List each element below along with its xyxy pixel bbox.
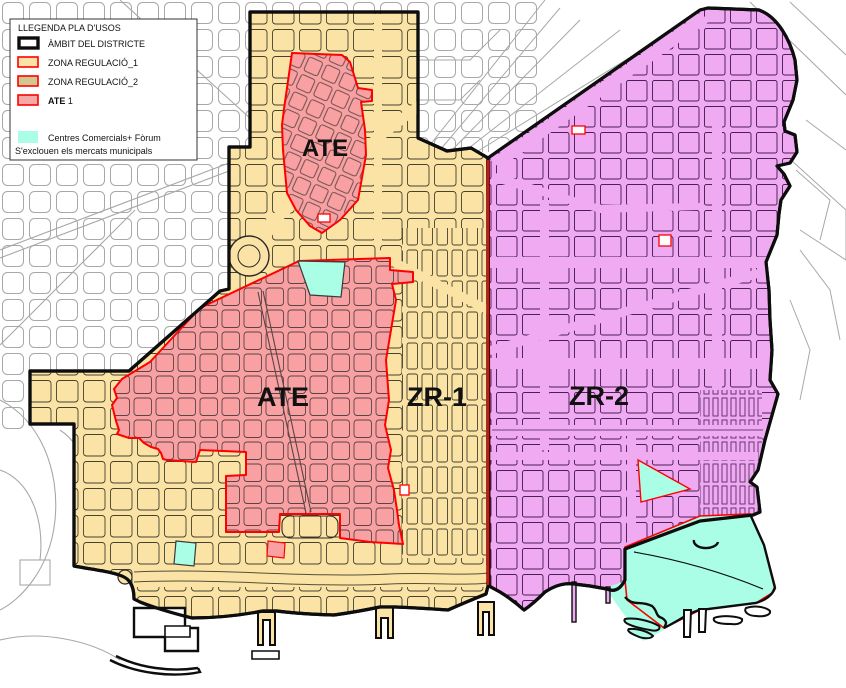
svg-text:ZONA REGULACIÓ_1: ZONA REGULACIÓ_1 <box>48 58 138 68</box>
svg-text:ATE 1: ATE 1 <box>48 96 73 106</box>
svg-text:ZR-2: ZR-2 <box>569 381 629 411</box>
svg-text:ATE: ATE <box>257 382 309 412</box>
svg-text:LLEGENDA PLA D'USOS: LLEGENDA PLA D'USOS <box>18 23 121 33</box>
svg-text:ATE: ATE <box>302 135 348 162</box>
svg-text:ÀMBIT DEL DISTRICTE: ÀMBIT DEL DISTRICTE <box>48 39 145 49</box>
svg-text:ZR-1: ZR-1 <box>407 382 467 412</box>
svg-text:Centres Comercials+ Fòrum: Centres Comercials+ Fòrum <box>48 133 161 143</box>
svg-text:S'exclouen els mercats municip: S'exclouen els mercats municipals <box>15 146 153 156</box>
svg-text:ZONA REGULACIÓ_2: ZONA REGULACIÓ_2 <box>48 77 138 87</box>
